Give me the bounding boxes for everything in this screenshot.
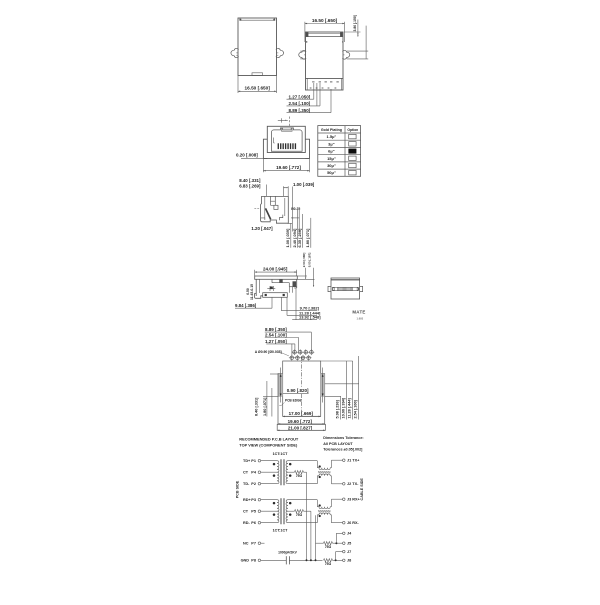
svg-text:NC: NC xyxy=(243,542,249,546)
svg-text:TD+: TD+ xyxy=(243,459,251,463)
svg-text:0.20 [.008]: 0.20 [.008] xyxy=(236,152,258,157)
svg-text:P4: P4 xyxy=(251,471,257,475)
svg-text:1.5µ": 1.5µ" xyxy=(327,134,337,139)
svg-text:J8: J8 xyxy=(347,559,351,563)
svg-text:TOP VIEW (COMPONENT SIDE): TOP VIEW (COMPONENT SIDE) xyxy=(239,442,298,447)
svg-text:9.84 [.386]: 9.84 [.386] xyxy=(235,303,257,308)
svg-text:19.60 [.772]: 19.60 [.772] xyxy=(276,165,301,170)
svg-text:1.27 [.050]: 1.27 [.050] xyxy=(265,339,287,344)
svg-text:P1: P1 xyxy=(251,459,256,463)
svg-text:8.40 [.331]: 8.40 [.331] xyxy=(254,397,258,416)
svg-text:50µ": 50µ" xyxy=(327,170,336,175)
svg-text:3.80 [.150]: 3.80 [.150] xyxy=(353,15,357,31)
svg-text:6µ": 6µ" xyxy=(328,149,335,154)
svg-text:1.80 [.071]: 1.80 [.071] xyxy=(305,228,310,248)
svg-text:GND: GND xyxy=(241,559,250,563)
svg-text:8.89 [.350]: 8.89 [.350] xyxy=(265,327,287,332)
svg-text:5.00 [.197]: 5.00 [.197] xyxy=(308,253,312,268)
svg-text:75Ω: 75Ω xyxy=(325,545,332,549)
svg-text:CT: CT xyxy=(243,510,249,514)
svg-text:2.54 [.100]: 2.54 [.100] xyxy=(354,399,358,418)
svg-text:1.80 [.071]: 1.80 [.071] xyxy=(263,397,267,416)
svg-text:2.04 [.080]: 2.04 [.080] xyxy=(302,253,306,268)
svg-text:30µ": 30µ" xyxy=(327,163,336,168)
svg-text:2.54 [.100]: 2.54 [.100] xyxy=(265,333,287,338)
svg-text:6.83 [.269]: 6.83 [.269] xyxy=(239,184,261,189)
svg-text:RD-: RD- xyxy=(243,521,250,525)
svg-text:CABLE SIDE: CABLE SIDE xyxy=(360,478,364,501)
svg-text:17.00 [.669]: 17.00 [.669] xyxy=(289,411,314,416)
svg-text:MATE: MATE xyxy=(352,310,365,315)
svg-text:1.00 [.039]: 1.00 [.039] xyxy=(285,228,290,248)
svg-text:PCB EDGE: PCB EDGE xyxy=(285,398,302,402)
svg-text:P2: P2 xyxy=(251,482,256,486)
svg-text:J1 TX+: J1 TX+ xyxy=(347,459,360,463)
svg-text:1.00 [.039]: 1.00 [.039] xyxy=(293,182,315,187)
svg-text:1000pF/2KV: 1000pF/2KV xyxy=(278,551,297,555)
svg-text:PCB SIDE: PCB SIDE xyxy=(235,480,239,498)
svg-text:P6: P6 xyxy=(251,521,256,525)
svg-text:6.35 [.250]: 6.35 [.250] xyxy=(297,228,302,248)
svg-text:P5: P5 xyxy=(251,510,256,514)
svg-text:All PCB LAYOUT: All PCB LAYOUT xyxy=(323,442,353,446)
svg-text:75Ω: 75Ω xyxy=(296,513,303,517)
svg-text:TD-: TD- xyxy=(243,482,250,486)
svg-text:5.98 [.236]: 5.98 [.236] xyxy=(336,399,340,418)
svg-text:1.20 [.047]: 1.20 [.047] xyxy=(251,226,273,231)
svg-text:1.693: 1.693 xyxy=(357,316,364,320)
svg-text:J5: J5 xyxy=(347,542,351,546)
svg-text:11.28 [.444]: 11.28 [.444] xyxy=(348,397,352,418)
svg-text:Option: Option xyxy=(347,128,358,132)
svg-text:J6 RX-: J6 RX- xyxy=(347,521,360,525)
svg-text:13.92 [.548]: 13.92 [.548] xyxy=(299,315,321,320)
svg-text:A Ø0.90 [Ø0.035]: A Ø0.90 [Ø0.035] xyxy=(255,350,282,354)
svg-text:11.45-0.15: 11.45-0.15 xyxy=(250,284,254,300)
svg-text:1CT:1CT: 1CT:1CT xyxy=(273,452,288,456)
svg-text:8.40 [.331]: 8.40 [.331] xyxy=(239,178,261,183)
svg-text:J7: J7 xyxy=(347,550,351,554)
svg-text:P3: P3 xyxy=(251,498,256,502)
svg-text:0.90 [.820]: 0.90 [.820] xyxy=(287,388,309,393)
svg-text:P7: P7 xyxy=(251,542,256,546)
svg-text:Dimensions Tolerance:: Dimensions Tolerance: xyxy=(323,436,363,440)
svg-text:21.00 [.827]: 21.00 [.827] xyxy=(288,426,313,431)
svg-text:Gold Plating: Gold Plating xyxy=(321,128,342,132)
svg-text:2.54 [.100]: 2.54 [.100] xyxy=(289,101,311,106)
svg-text:J2 TX-: J2 TX- xyxy=(347,482,359,486)
svg-text:RD+: RD+ xyxy=(243,498,251,502)
svg-text:15µ": 15µ" xyxy=(327,156,336,161)
svg-text:1CT:1CT: 1CT:1CT xyxy=(273,528,288,532)
svg-text:1.27 [.050]: 1.27 [.050] xyxy=(289,94,311,99)
svg-text:24.00 [.945]: 24.00 [.945] xyxy=(263,267,288,272)
svg-text:J4: J4 xyxy=(347,532,352,536)
svg-text:P8: P8 xyxy=(251,559,256,563)
svg-text:19.60 [.772]: 19.60 [.772] xyxy=(288,419,313,424)
svg-text:3µ": 3µ" xyxy=(328,141,335,146)
svg-text:75Ω: 75Ω xyxy=(296,474,303,478)
svg-text:J3 RX+: J3 RX+ xyxy=(347,498,361,502)
svg-text:8.89 [.350]: 8.89 [.350] xyxy=(289,108,311,113)
svg-text:CT: CT xyxy=(243,471,249,475)
svg-text:75Ω: 75Ω xyxy=(325,562,332,566)
svg-text:Tolerances ±0.05[.002]: Tolerances ±0.05[.002] xyxy=(323,447,363,451)
svg-text:10.00 [.394]: 10.00 [.394] xyxy=(342,397,346,418)
svg-text:16.50 [.650]: 16.50 [.650] xyxy=(312,18,338,23)
svg-text:16.50 [.650]: 16.50 [.650] xyxy=(245,85,271,90)
svg-text:RECOMMENDED P.C.B LAYOUT: RECOMMENDED P.C.B LAYOUT xyxy=(239,437,299,442)
